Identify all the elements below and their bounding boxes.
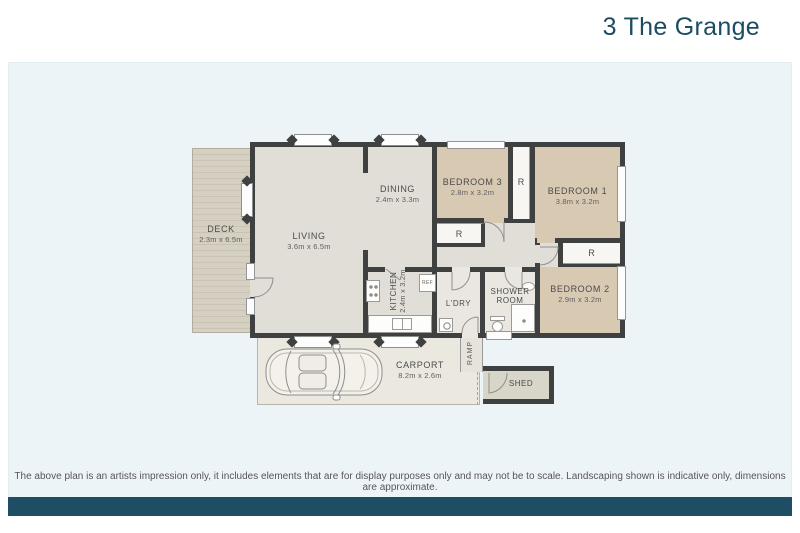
- carport-label: CARPORT 8.2m x 2.6m: [365, 360, 475, 381]
- room-dims: 2.8m x 3.2m: [437, 189, 508, 198]
- stove-cooktop: [366, 280, 380, 302]
- room-dims: 2.4m x 3.3m: [363, 196, 432, 205]
- shower-door-opening: [505, 267, 522, 272]
- disclaimer-text: The above plan is an artists impression …: [8, 471, 792, 493]
- shower-room-window: [486, 331, 512, 340]
- page-title: 3 The Grange: [603, 13, 760, 42]
- robe-label: R: [518, 177, 525, 187]
- robe-label: R: [456, 229, 463, 239]
- laundry-label: L'DRY: [437, 299, 480, 308]
- living-bay-window-top: [294, 134, 332, 146]
- room-name: DECK: [192, 224, 250, 234]
- toilet-bowl: [492, 321, 503, 332]
- refrigerator: REF: [419, 274, 436, 292]
- room-name: CARPORT: [365, 360, 475, 370]
- vestibule-door-opening: [535, 245, 540, 263]
- room-name: BEDROOM 3: [437, 177, 508, 187]
- carport-boundary-dashed: [477, 372, 479, 405]
- room-name: KITCHEN: [389, 256, 398, 326]
- washing-machine: [439, 318, 453, 332]
- room-name: L'DRY: [437, 299, 480, 308]
- room-name: LIVING: [255, 231, 363, 241]
- dining-partition-wall: [363, 147, 368, 173]
- floorplan-page: 3 The Grange R R R: [0, 0, 800, 533]
- room-name: BEDROOM 1: [535, 186, 620, 196]
- bedroom3-robe: R: [437, 223, 485, 247]
- bedroom2-vestibule-floor: [540, 243, 558, 267]
- bedroom2-robe: R: [563, 243, 620, 264]
- room-name: BEDROOM 2: [540, 284, 620, 294]
- room-dims: 3.8m x 3.2m: [535, 198, 620, 207]
- robe-label: R: [588, 248, 595, 258]
- living-label: LIVING 3.6m x 6.5m: [255, 231, 363, 252]
- living-entry-opening: [250, 277, 255, 297]
- room-dims: 2.4m x 3.2m: [399, 256, 408, 326]
- room-dims: 8.2m x 2.6m: [365, 372, 475, 381]
- room-dims: 2.3m x 6.5m: [192, 236, 250, 245]
- kitchen-label: KITCHEN 2.4m x 3.2m: [389, 256, 413, 326]
- dining-label: DINING 2.4m x 3.3m: [363, 184, 432, 205]
- living-window-lower: [246, 298, 255, 315]
- room-dims: 3.6m x 6.5m: [255, 243, 363, 252]
- bedroom3-door-opening: [484, 218, 504, 223]
- shower-room-label: SHOWER ROOM: [485, 287, 535, 305]
- bedroom3-window: [447, 141, 505, 149]
- room-name: SHOWER ROOM: [485, 287, 535, 305]
- footer-accent-bar: [8, 497, 792, 516]
- room-dims: 2.9m x 3.2m: [540, 296, 620, 305]
- bedroom1-door-opening: [537, 238, 555, 243]
- living-bay-window-bottom2: [381, 336, 419, 348]
- dining-room-floor: [363, 147, 432, 267]
- bedroom1-label: BEDROOM 1 3.8m x 3.2m: [535, 186, 620, 207]
- room-name: SHED: [495, 379, 547, 388]
- shower-cubicle: [511, 304, 535, 332]
- living-bay-window-left: [241, 183, 253, 217]
- shed-label: SHED: [495, 379, 547, 388]
- living-window-upper: [246, 263, 255, 280]
- bedroom1-robe: R: [513, 147, 530, 219]
- room-name: DINING: [363, 184, 432, 194]
- bedroom2-label: BEDROOM 2 2.9m x 3.2m: [540, 284, 620, 305]
- laundry-door-opening: [452, 267, 470, 272]
- deck-label: DECK 2.3m x 6.5m: [192, 224, 250, 245]
- dining-bay-window-top: [381, 134, 419, 146]
- bedroom3-label: BEDROOM 3 2.8m x 3.2m: [437, 177, 508, 198]
